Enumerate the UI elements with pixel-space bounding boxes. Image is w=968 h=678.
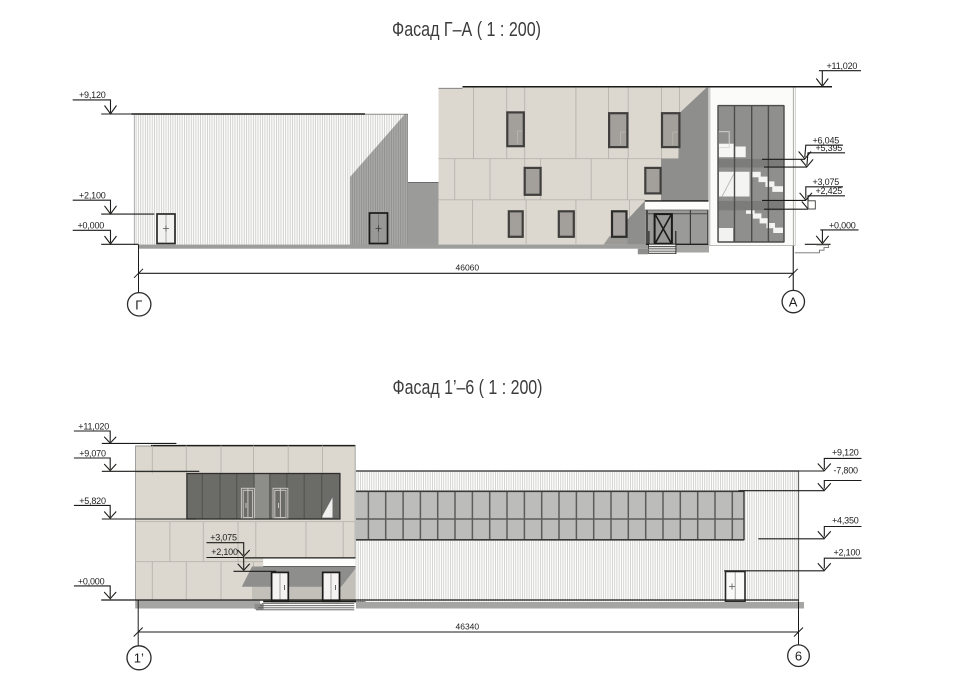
svg-text:6: 6 [795,648,802,663]
svg-text:-7,800: -7,800 [834,466,859,476]
svg-text:Г: Г [135,297,142,312]
svg-text:Фасад 1’–6 ( 1 : 200): Фасад 1’–6 ( 1 : 200) [393,377,543,399]
svg-text:+2,100: +2,100 [834,548,861,558]
svg-text:+9,120: +9,120 [832,448,859,458]
svg-text:+11,020: +11,020 [78,421,109,431]
svg-text:+9,070: +9,070 [79,448,106,458]
svg-text:+5,820: +5,820 [79,496,106,506]
svg-text:+3,075: +3,075 [210,533,237,543]
svg-text:46340: 46340 [456,621,480,631]
svg-text:+11,020: +11,020 [827,61,858,71]
svg-text:+5,395: +5,395 [816,143,843,153]
svg-text:+0,000: +0,000 [829,221,856,231]
svg-text:+9,120: +9,120 [79,90,106,100]
svg-text:А: А [789,294,798,309]
svg-text:Фасад Г–А ( 1 : 200): Фасад Г–А ( 1 : 200) [392,19,541,41]
svg-text:+0,000: +0,000 [78,576,105,586]
svg-text:+2,425: +2,425 [816,186,843,196]
svg-text:+4,350: +4,350 [832,516,859,526]
svg-text:+2,100: +2,100 [79,191,106,201]
svg-text:+2,100: +2,100 [211,547,238,557]
svg-text:1’: 1’ [134,651,144,666]
svg-text:46060: 46060 [456,263,480,273]
svg-text:+0,000: +0,000 [78,221,105,231]
